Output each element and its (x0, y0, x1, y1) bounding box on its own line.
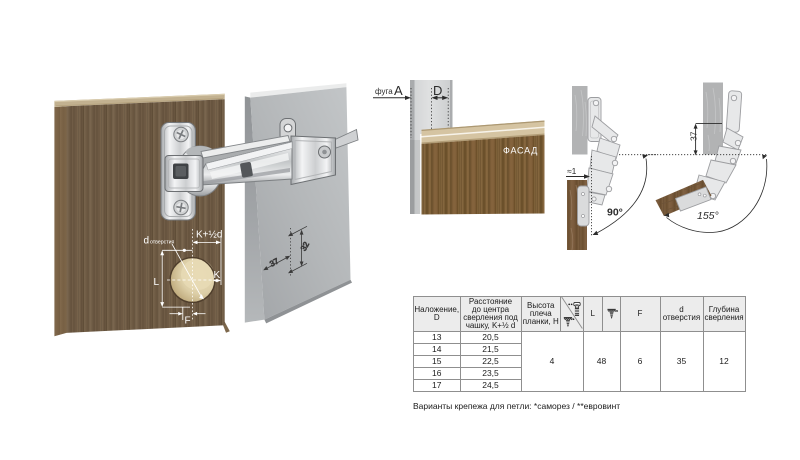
svg-text:F: F (185, 316, 191, 327)
svg-text:отверстия: отверстия (150, 240, 174, 246)
svg-text:90°: 90° (607, 207, 623, 219)
svg-text:D: D (433, 83, 442, 98)
svg-text:≈1: ≈1 (567, 166, 577, 176)
svg-text:155°: 155° (697, 210, 719, 222)
svg-text:K+½d: K+½d (196, 230, 222, 241)
svg-text:37: 37 (689, 131, 699, 141)
svg-text:K: K (214, 270, 221, 281)
svg-text:A: A (394, 83, 403, 98)
svg-text:L: L (154, 277, 160, 288)
svg-text:ФАСАД: ФАСАД (503, 146, 538, 156)
svg-text:фуга: фуга (375, 87, 393, 96)
svg-text:d: d (144, 236, 150, 247)
